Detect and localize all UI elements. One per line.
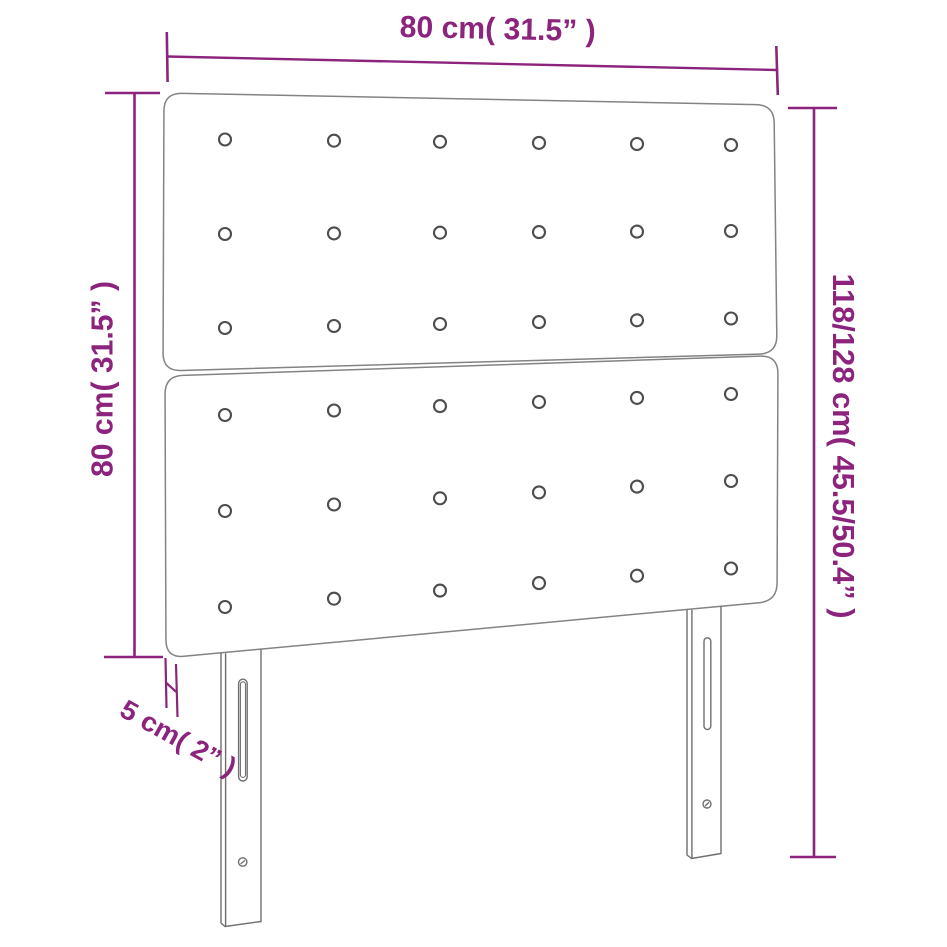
svg-text:80 cm( 31.5” ): 80 cm( 31.5” ) <box>399 10 596 48</box>
svg-text:80 cm( 31.5” ): 80 cm( 31.5” ) <box>86 281 120 477</box>
svg-text:118/128 cm( 45.5/50.4” ): 118/128 cm( 45.5/50.4” ) <box>826 274 860 619</box>
